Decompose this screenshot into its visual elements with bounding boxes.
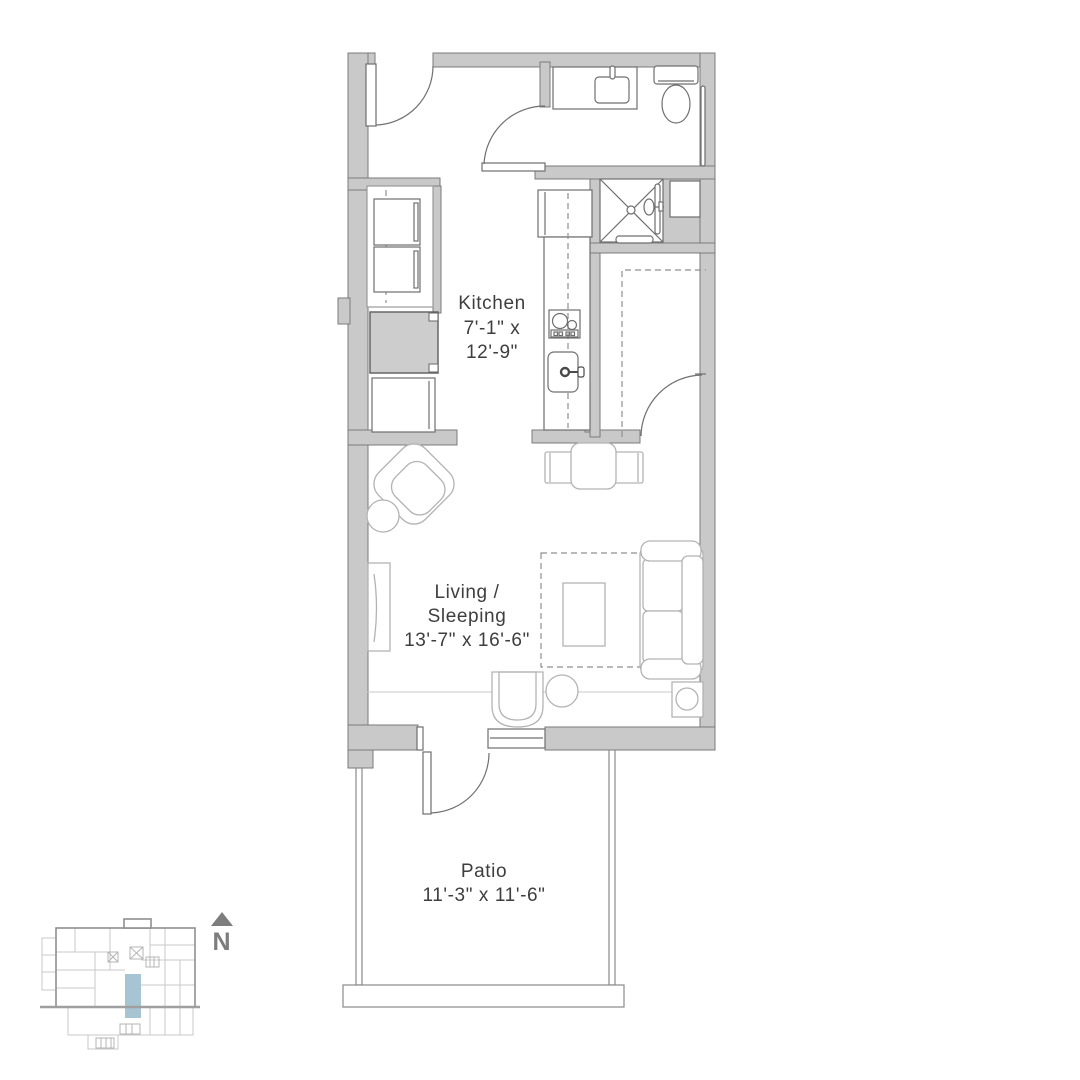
wall-left-bump [338,298,350,324]
dryer-box [374,247,420,292]
closet [622,270,706,437]
patio-door-leaf [423,752,431,814]
sofa-cushion-top [643,559,683,611]
key-plan-left-wing [42,938,56,990]
patio-door-swing-arc [431,753,489,813]
kitchen-faucet-icon [561,368,569,376]
ottoman [546,675,578,707]
key-plan-notch [124,919,151,928]
wall-top [433,53,715,67]
living-dims: 13'-7" x 16'-6" [404,630,530,651]
shower-drain-icon [627,206,635,214]
wall-bath-bottom [535,166,715,179]
floor-plan-canvas: Kitchen 7'-1" x 12'-9" Living / Sleeping… [0,0,1080,1080]
north-arrow-icon [211,912,233,926]
wall-bottom-left [348,725,418,750]
kitchen-dims-line1: 7'-1" x [464,318,521,339]
shower [600,179,664,243]
patio-label: Patio [461,861,507,882]
patio-wall-left [356,768,362,985]
sofa-back [682,556,703,664]
wall-left [348,53,368,750]
dining-set [545,443,643,489]
bathroom-door [482,106,545,171]
entry-door-swing-arc [376,66,433,125]
chase-box [370,312,438,373]
kitchen-counter [538,190,592,430]
kitchen-dims-line2: 12'-9" [466,342,518,363]
key-plan-stair-box [120,1024,140,1034]
linen-cabinet [670,181,700,217]
dining-table [571,443,616,489]
wall-bath-divider [540,62,550,107]
patio-footing [343,985,624,1007]
floor-plan-page: Kitchen 7'-1" x 12'-9" Living / Sleeping… [0,0,1080,1080]
north-arrow: N [211,912,233,956]
kitchen-faucet-handle [578,367,584,377]
north-label: N [212,928,231,956]
patio-wall-right [609,750,615,985]
refrigerator-box [372,378,435,432]
shower-handle-icon [644,199,654,215]
washer-box [374,199,420,245]
laundry-closet [367,186,433,307]
key-plan-stair-box [146,957,159,967]
closet-rod-dashed [622,270,706,437]
chase-notch-top [429,313,438,321]
bathroom [482,66,705,171]
coffee-table [563,583,605,646]
bathroom-door-swing-arc [484,106,545,164]
toilet-bowl [662,85,690,123]
wall-shower-bottom [590,243,715,253]
bathroom-sink [595,77,629,103]
patio-dims: 11'-3" x 11'-6" [422,885,545,906]
patio-door [423,752,489,814]
lounge-chair [492,672,543,727]
upper-cabinet [538,190,592,237]
sofa-cushion-bottom [643,611,683,663]
entry-door [366,64,433,126]
entry-door-leaf [366,64,376,126]
refrigerator [372,378,435,432]
sofa-bed [640,541,703,679]
tv-console-frame [368,563,390,651]
living-label-line2: Sleeping [428,606,507,627]
utility-chase [370,312,438,373]
window [488,729,545,748]
patio-door-jamb [417,727,423,750]
closet-door-swing-arc [641,375,702,436]
kitchen-label: Kitchen [458,293,526,314]
wall-closet-left [590,253,600,437]
key-plan [40,919,200,1049]
patio-openings [417,727,545,814]
shower-handle-plate [659,202,663,211]
lamp-table [672,682,703,717]
tv-console [368,563,390,651]
toilet [654,66,698,123]
kitchen-sink [548,352,584,392]
bathroom-faucet-icon [610,66,615,79]
unit-highlight [125,974,141,1018]
living-label-line1: Living / [434,582,499,603]
chase-notch-bottom [429,364,438,372]
wall-laundry-side [433,186,441,313]
wall-bottom-right [545,727,715,750]
wall-patio-stub [348,750,373,768]
side-table [367,500,399,532]
bathroom-door-leaf [482,163,545,171]
shower-threshold [616,236,653,243]
towel-bar [701,86,705,166]
living-furniture [367,437,703,727]
